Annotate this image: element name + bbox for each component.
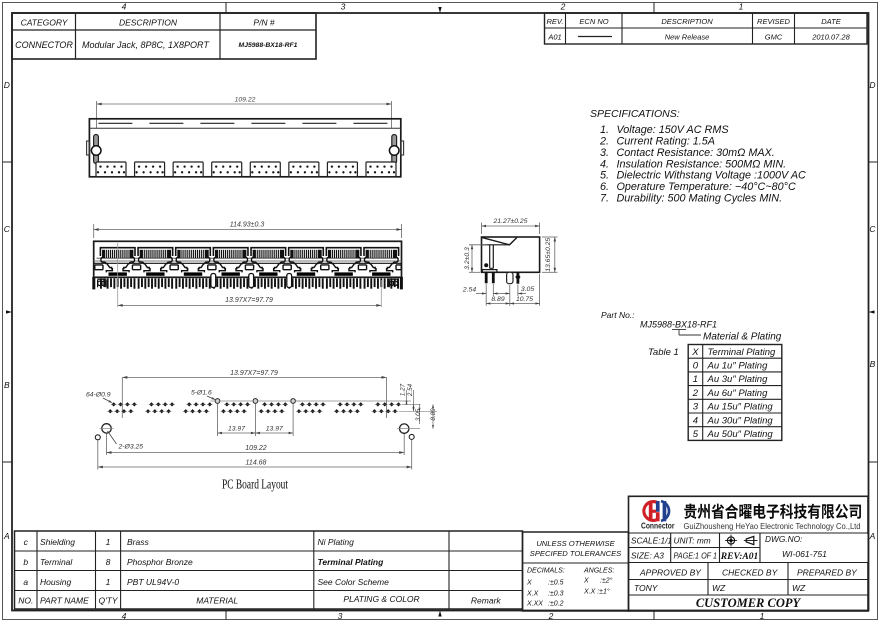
svg-text:a: a bbox=[23, 577, 28, 587]
svg-text:6.: 6. bbox=[600, 181, 609, 193]
svg-text:A: A bbox=[869, 531, 876, 541]
svg-text:3: 3 bbox=[341, 2, 346, 12]
svg-text:CATEGORY: CATEGORY bbox=[21, 18, 69, 28]
svg-text:NO.: NO. bbox=[18, 596, 33, 606]
svg-text:2010.07.28: 2010.07.28 bbox=[811, 33, 850, 42]
svg-text:CONNECTOR: CONNECTOR bbox=[15, 40, 73, 50]
svg-text:64-Ø0.9: 64-Ø0.9 bbox=[86, 392, 111, 399]
svg-text:CUSTOMER COPY: CUSTOMER COPY bbox=[696, 596, 802, 610]
svg-text:Table 1: Table 1 bbox=[648, 347, 679, 358]
svg-text:X: X bbox=[691, 347, 699, 358]
svg-text::±0.5: :±0.5 bbox=[548, 580, 564, 587]
svg-text:C: C bbox=[869, 224, 876, 234]
svg-text:D: D bbox=[869, 80, 875, 90]
svg-text:Dielectric Withstang Voltage: Dielectric Withstang Voltage :1000V AC bbox=[617, 170, 807, 182]
svg-text::±0.2: :±0.2 bbox=[548, 601, 564, 608]
svg-text:Current Rating: 1.5A: Current Rating: 1.5A bbox=[617, 135, 715, 147]
svg-text:3.: 3. bbox=[600, 147, 609, 159]
svg-text:Phosphor Bronze: Phosphor Bronze bbox=[127, 557, 193, 567]
svg-text:Au 15u″ Plating: Au 15u″ Plating bbox=[707, 402, 774, 413]
svg-text:Voltage: 150V AC RMS: Voltage: 150V AC RMS bbox=[617, 124, 730, 136]
svg-text:2.: 2. bbox=[599, 135, 609, 147]
svg-text:Au 30u″ Plating: Au 30u″ Plating bbox=[707, 415, 774, 426]
svg-text:8.89: 8.89 bbox=[491, 296, 504, 303]
svg-text:2.54: 2.54 bbox=[462, 287, 476, 294]
svg-text:X: X bbox=[583, 578, 589, 585]
svg-text:New Release: New Release bbox=[665, 33, 710, 42]
svg-text:3.2±0.3: 3.2±0.3 bbox=[464, 247, 471, 270]
svg-text:114.93±0.3: 114.93±0.3 bbox=[230, 222, 265, 229]
svg-text:3.05: 3.05 bbox=[521, 286, 534, 293]
svg-text:UNLESS OTHERWISE: UNLESS OTHERWISE bbox=[536, 539, 615, 548]
svg-text:DECIMALS:: DECIMALS: bbox=[527, 568, 565, 575]
svg-text:A: A bbox=[3, 531, 10, 541]
svg-text:B: B bbox=[4, 380, 10, 390]
svg-text:Housing: Housing bbox=[40, 577, 71, 587]
svg-text:109.22: 109.22 bbox=[245, 445, 267, 452]
svg-text:Au 50u″ Plating: Au 50u″ Plating bbox=[707, 429, 774, 440]
svg-text:PLATING & COLOR: PLATING & COLOR bbox=[343, 594, 419, 604]
svg-text:Au 3u″ Plating: Au 3u″ Plating bbox=[707, 374, 769, 385]
svg-text:GMC: GMC bbox=[765, 33, 783, 42]
svg-text:5: 5 bbox=[693, 429, 699, 440]
svg-text::±0.3: :±0.3 bbox=[548, 591, 564, 598]
svg-text:REV.: REV. bbox=[547, 17, 564, 26]
svg-text:3: 3 bbox=[338, 611, 343, 621]
svg-text:3: 3 bbox=[693, 402, 699, 413]
svg-text:Terminal: Terminal bbox=[40, 557, 73, 567]
svg-text:Terminal Plating: Terminal Plating bbox=[318, 557, 385, 567]
svg-text:WI-061-751: WI-061-751 bbox=[782, 549, 827, 559]
svg-text:Au 1u″ Plating: Au 1u″ Plating bbox=[707, 361, 769, 372]
svg-text:P/N #: P/N # bbox=[253, 18, 275, 28]
svg-text:5.: 5. bbox=[600, 170, 609, 182]
svg-text:21.27±0.25: 21.27±0.25 bbox=[493, 218, 528, 225]
svg-text:SPECIFED TOLERANCES: SPECIFED TOLERANCES bbox=[530, 549, 621, 558]
svg-text:GuiZhousheng HeYao Electronic: GuiZhousheng HeYao Electronic Technology… bbox=[684, 521, 861, 531]
svg-text:1: 1 bbox=[693, 374, 698, 385]
svg-text:PBT UL94V-0: PBT UL94V-0 bbox=[127, 577, 179, 587]
svg-text:MATERIAL: MATERIAL bbox=[196, 596, 238, 606]
svg-text:CHECKED BY: CHECKED BY bbox=[722, 568, 779, 578]
svg-text:D: D bbox=[4, 80, 10, 90]
svg-text:4: 4 bbox=[693, 415, 698, 426]
svg-text:4: 4 bbox=[122, 611, 127, 621]
svg-text:Shielding: Shielding bbox=[40, 537, 75, 547]
svg-text:Brass: Brass bbox=[127, 537, 149, 547]
svg-text:1: 1 bbox=[739, 2, 744, 12]
svg-text:TONY: TONY bbox=[634, 583, 659, 593]
svg-text:8: 8 bbox=[106, 557, 111, 567]
svg-text:A01: A01 bbox=[547, 33, 561, 42]
svg-text:13.97X7=97.79: 13.97X7=97.79 bbox=[230, 370, 278, 377]
svg-text:Material & Plating: Material & Plating bbox=[703, 332, 782, 343]
svg-text:See Color Scheme: See Color Scheme bbox=[318, 577, 390, 587]
svg-text:0: 0 bbox=[693, 361, 699, 372]
svg-text:MJ5988-BX18-RF1: MJ5988-BX18-RF1 bbox=[640, 320, 717, 330]
svg-text:X: X bbox=[526, 580, 532, 587]
svg-text:DESCRIPTION: DESCRIPTION bbox=[119, 18, 178, 28]
svg-text::±2°: :±2° bbox=[600, 577, 613, 585]
svg-text:UNIT: mm: UNIT: mm bbox=[674, 536, 711, 546]
svg-text:Au 6u″ Plating: Au 6u″ Plating bbox=[707, 388, 769, 399]
svg-text:DATE: DATE bbox=[821, 17, 841, 26]
svg-text:DWG.NO:: DWG.NO: bbox=[765, 534, 802, 544]
svg-text:APPROVED BY: APPROVED BY bbox=[639, 568, 702, 578]
svg-text:c: c bbox=[24, 537, 29, 547]
svg-text:2.54: 2.54 bbox=[407, 383, 414, 397]
svg-text:WZ: WZ bbox=[792, 583, 806, 593]
svg-text:1: 1 bbox=[106, 577, 111, 587]
svg-text:SIZE: A3: SIZE: A3 bbox=[631, 551, 664, 561]
svg-text:5-Ø1.6: 5-Ø1.6 bbox=[191, 390, 212, 397]
svg-text:2: 2 bbox=[692, 388, 699, 399]
svg-text:13.97X7=97.79: 13.97X7=97.79 bbox=[225, 297, 273, 304]
svg-text:1.: 1. bbox=[600, 124, 609, 136]
svg-text:13.97: 13.97 bbox=[266, 426, 283, 433]
svg-text:1: 1 bbox=[760, 611, 765, 621]
svg-text:109.22: 109.22 bbox=[235, 97, 256, 104]
svg-text:Remark: Remark bbox=[471, 596, 502, 606]
svg-text:PAGE:1 OF 1: PAGE:1 OF 1 bbox=[674, 551, 718, 561]
svg-text:Durability: 500 Mating Cycl: Durability: 500 Mating Cycles MIN. bbox=[617, 193, 783, 205]
svg-text:PREPARED BY: PREPARED BY bbox=[797, 568, 858, 578]
svg-text:MJ5988-BX18-RF1: MJ5988-BX18-RF1 bbox=[239, 42, 298, 49]
svg-text:Ni Plating: Ni Plating bbox=[318, 537, 355, 547]
svg-text:REVISED: REVISED bbox=[757, 17, 791, 26]
svg-text:REV:A01: REV:A01 bbox=[720, 551, 758, 562]
svg-text:B: B bbox=[870, 359, 876, 369]
svg-text:C: C bbox=[4, 224, 11, 234]
svg-text:Modular Jack, 8P8C, 1X8PORT: Modular Jack, 8P8C, 1X8PORT bbox=[82, 40, 210, 50]
svg-text:Contact Resistance: 30mΩ MAX: Contact Resistance: 30mΩ MAX. bbox=[617, 147, 775, 159]
svg-text:SCALE:1/1: SCALE:1/1 bbox=[631, 536, 672, 546]
svg-text:X.XX: X.XX bbox=[526, 601, 543, 608]
svg-text:2: 2 bbox=[560, 2, 566, 12]
svg-text:ECN NO: ECN NO bbox=[579, 17, 608, 26]
svg-text:PC Board Layout: PC Board Layout bbox=[222, 477, 288, 492]
svg-text:7.: 7. bbox=[600, 193, 609, 205]
svg-text:1: 1 bbox=[106, 537, 111, 547]
svg-text:3.05: 3.05 bbox=[415, 408, 422, 421]
svg-text:Connector: Connector bbox=[641, 522, 675, 531]
svg-text:Terminal Plating: Terminal Plating bbox=[708, 347, 776, 358]
svg-text:Part No.:: Part No.: bbox=[601, 310, 635, 320]
svg-text:ANGLES:: ANGLES: bbox=[583, 568, 614, 575]
svg-text:X.X: X.X bbox=[526, 591, 539, 598]
svg-text:8.89: 8.89 bbox=[430, 408, 437, 421]
svg-text:WZ: WZ bbox=[712, 583, 726, 593]
svg-text:Operature Temperature: −40°C: Operature Temperature: −40°C~80°C bbox=[617, 181, 796, 193]
svg-text:b: b bbox=[23, 557, 28, 567]
svg-text:1.27: 1.27 bbox=[400, 383, 407, 396]
svg-text:Q'TY: Q'TY bbox=[98, 596, 118, 606]
svg-text:4: 4 bbox=[122, 2, 127, 12]
svg-text:Insulation Resistance: 500MΩ: Insulation Resistance: 500MΩ MIN. bbox=[617, 158, 787, 170]
svg-text:2-Ø3.25: 2-Ø3.25 bbox=[118, 444, 144, 451]
svg-text:4.: 4. bbox=[600, 158, 609, 170]
svg-text:SPECIFICATIONS:: SPECIFICATIONS: bbox=[590, 108, 680, 120]
svg-text:10.75: 10.75 bbox=[516, 296, 533, 303]
svg-text:114.68: 114.68 bbox=[246, 460, 267, 467]
svg-text:X.X :±1°: X.X :±1° bbox=[583, 588, 610, 596]
svg-text:PART NAME: PART NAME bbox=[40, 596, 89, 606]
svg-text:13.65±0.25: 13.65±0.25 bbox=[545, 238, 552, 272]
svg-text:2: 2 bbox=[548, 611, 554, 621]
svg-text:DESCRIPTION: DESCRIPTION bbox=[661, 17, 713, 26]
svg-text:13.97: 13.97 bbox=[228, 426, 245, 433]
